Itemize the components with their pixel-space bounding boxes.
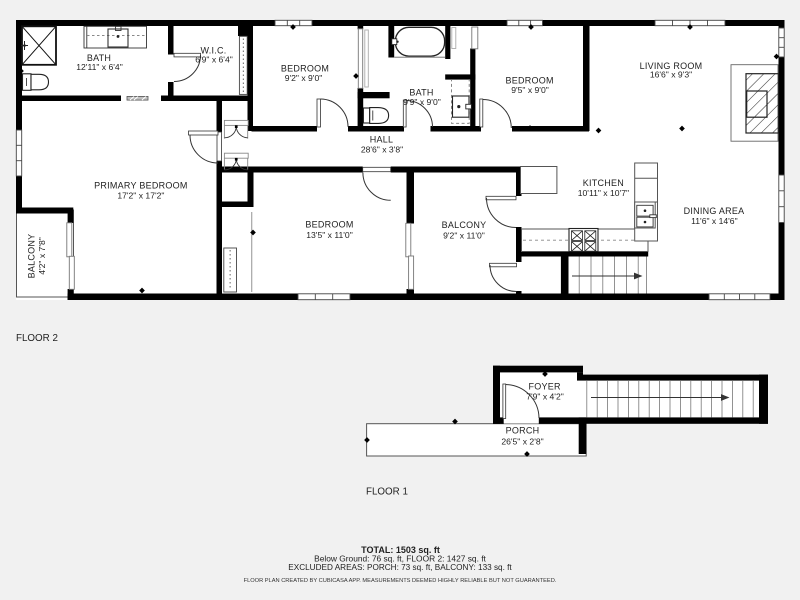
svg-text:26'5" x 2'8": 26'5" x 2'8" xyxy=(501,436,543,446)
svg-text:EXCLUDED AREAS: PORCH: 73 sq.: EXCLUDED AREAS: PORCH: 73 sq. ft, BALCON… xyxy=(288,563,512,572)
svg-text:9'9" x 9'0": 9'9" x 9'0" xyxy=(403,97,441,107)
svg-text:7'9" x 4'2": 7'9" x 4'2" xyxy=(526,391,564,401)
svg-text:BEDROOM: BEDROOM xyxy=(281,63,329,73)
svg-text:HALL: HALL xyxy=(370,135,394,145)
svg-text:PRIMARY BEDROOM: PRIMARY BEDROOM xyxy=(94,181,187,191)
svg-text:6'9" x 6'4": 6'9" x 6'4" xyxy=(195,54,233,64)
svg-text:KITCHEN: KITCHEN xyxy=(583,178,624,188)
svg-text:11'6" x 14'6": 11'6" x 14'6" xyxy=(691,216,738,226)
svg-text:9'2" x 9'0": 9'2" x 9'0" xyxy=(285,73,323,83)
svg-text:FOYER: FOYER xyxy=(528,381,561,391)
svg-text:16'6" x 9'3": 16'6" x 9'3" xyxy=(650,70,692,80)
svg-text:13'5" x 11'0": 13'5" x 11'0" xyxy=(306,230,353,240)
svg-text:FLOOR PLAN CREATED BY CUBICASA: FLOOR PLAN CREATED BY CUBICASA APP. MEAS… xyxy=(244,578,557,584)
svg-text:10'11" x 10'7": 10'11" x 10'7" xyxy=(578,188,629,198)
svg-text:BALCONY: BALCONY xyxy=(27,234,37,279)
svg-text:9'2" x 11'0": 9'2" x 11'0" xyxy=(443,230,485,240)
svg-text:12'11" x 6'4": 12'11" x 6'4" xyxy=(76,62,123,72)
svg-text:BALCONY: BALCONY xyxy=(442,220,487,230)
svg-text:DINING AREA: DINING AREA xyxy=(684,206,745,216)
svg-text:17'2" x 17'2": 17'2" x 17'2" xyxy=(117,191,164,201)
svg-text:BEDROOM: BEDROOM xyxy=(305,219,353,229)
svg-text:PORCH: PORCH xyxy=(506,425,540,435)
svg-text:FLOOR 2: FLOOR 2 xyxy=(16,333,58,344)
svg-text:28'6" x 3'8": 28'6" x 3'8" xyxy=(361,144,403,154)
svg-text:Below Ground: 76 sq. ft, FLOOR: Below Ground: 76 sq. ft, FLOOR 2: 1427 s… xyxy=(314,554,486,564)
svg-text:4'2" x 7'8": 4'2" x 7'8" xyxy=(37,237,47,275)
svg-text:BATH: BATH xyxy=(409,87,433,97)
svg-text:FLOOR 1: FLOOR 1 xyxy=(366,487,408,498)
svg-text:9'5" x 9'0": 9'5" x 9'0" xyxy=(511,85,549,95)
